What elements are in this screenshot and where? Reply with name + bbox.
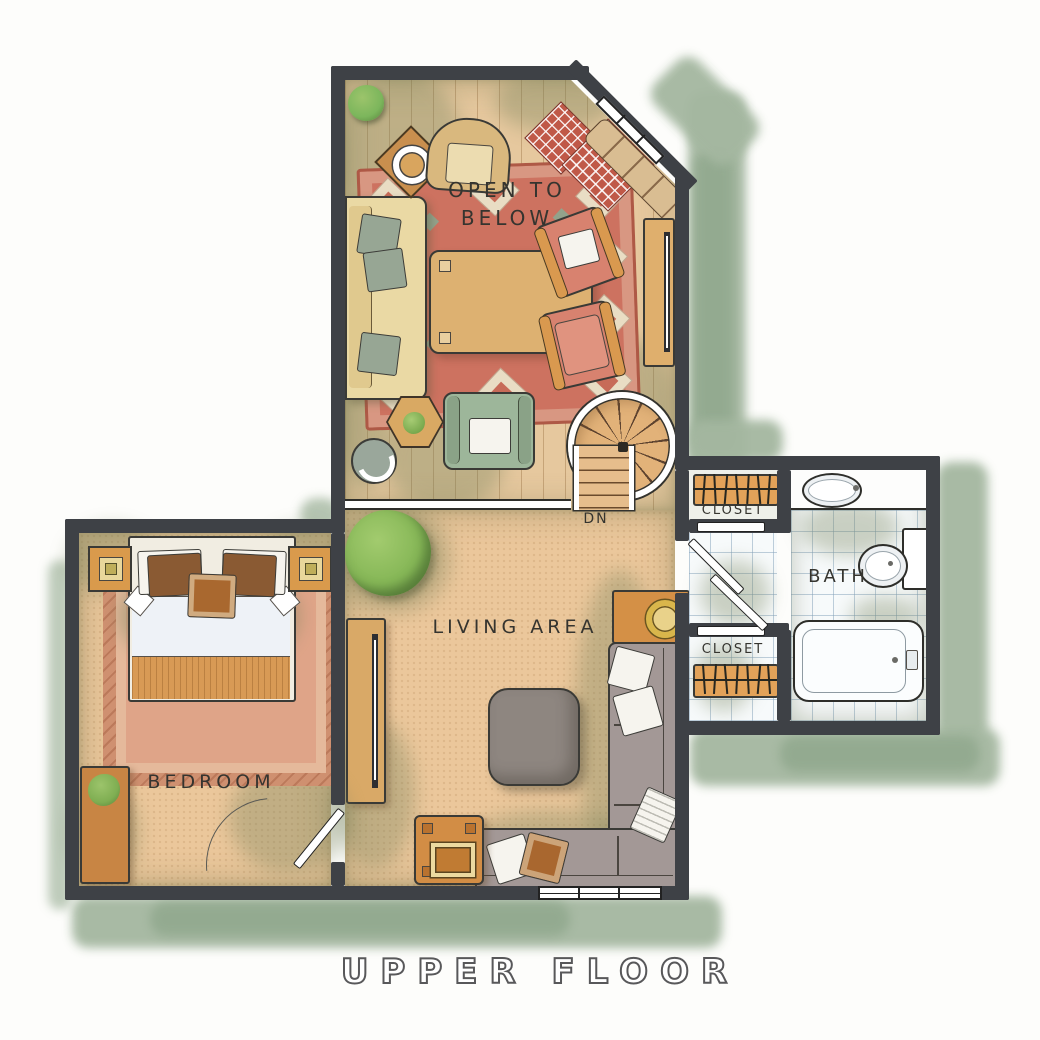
window-rail [540, 893, 660, 895]
wall [331, 66, 589, 80]
loft-railing [345, 499, 571, 510]
tv-console-living [346, 618, 386, 804]
floor-plan-canvas: OPEN TO BELOW [0, 0, 1040, 1040]
window-bottom [538, 886, 662, 900]
armchair-green [443, 392, 535, 470]
watercolor-shadow [780, 736, 980, 772]
wall [65, 519, 79, 900]
wall [777, 630, 791, 721]
window-mullion [636, 134, 646, 144]
lamp-inner [105, 563, 117, 575]
watercolor-shadow [150, 902, 570, 936]
sofa-pillow [362, 247, 407, 292]
bath-counter [791, 470, 926, 510]
chair-arm [447, 396, 460, 464]
foot-blanket [132, 656, 290, 699]
sofa-pillow [357, 332, 402, 377]
stairs-dn-label: DN [576, 511, 616, 527]
room-label-bath: BATH [778, 566, 898, 587]
sink [802, 473, 862, 508]
ottoman [488, 688, 580, 786]
wall [675, 172, 689, 470]
bathtub [793, 620, 924, 702]
closet-rod-shelf [693, 664, 779, 698]
tub-faucet [906, 650, 918, 670]
closet-rod-shelf [693, 474, 779, 506]
table-leg [422, 823, 433, 834]
open-to-below-line2: BELOW [407, 206, 607, 230]
open-to-below-line1: OPEN TO [407, 178, 607, 202]
stair-center-pole [618, 442, 628, 452]
wall [331, 533, 345, 805]
watercolor-shadow [694, 150, 734, 450]
room-label-bedroom: BEDROOM [121, 771, 301, 793]
wall [675, 470, 689, 541]
chair-cushion [469, 418, 511, 454]
lamp-inner [305, 563, 317, 575]
window-mullion [616, 114, 626, 124]
wall [777, 470, 791, 533]
chair-pillow [557, 228, 600, 270]
bed-pillow-accent [187, 573, 237, 619]
closet-slider-door [697, 522, 765, 532]
tv-glint [374, 640, 376, 780]
plan-title: UPPER FLOOR [260, 952, 820, 992]
nightstand [88, 546, 132, 592]
tray [431, 843, 475, 877]
closet-slider-door [697, 626, 765, 636]
wall [331, 66, 345, 533]
wall [675, 721, 940, 735]
spiral-staircase [564, 392, 682, 514]
nightstand [288, 546, 332, 592]
watercolor-shadow [936, 462, 988, 742]
sink-faucet [853, 485, 859, 491]
room-living-area: LIVING AREA [345, 510, 675, 886]
tub-inner [802, 629, 906, 693]
large-plant [345, 510, 431, 596]
potted-plant-icon [88, 774, 120, 806]
stair-straight-flight [574, 446, 634, 510]
bed [128, 536, 296, 702]
wall [926, 456, 940, 735]
sofa-seam [617, 836, 619, 876]
room-label-open-to-below: OPEN TO BELOW [407, 178, 607, 230]
wall [675, 456, 940, 470]
tv-console-below [643, 218, 675, 367]
room-label-living-area: LIVING AREA [403, 616, 627, 638]
armchair-coral [539, 299, 625, 391]
end-table [414, 815, 484, 885]
chair-arm [518, 396, 531, 464]
table-leg [465, 823, 476, 834]
wall [675, 593, 689, 900]
potted-plant-icon [348, 85, 384, 121]
tub-drain [892, 657, 898, 663]
wall [65, 519, 345, 533]
table-leg [439, 260, 451, 272]
tv-glint [666, 236, 668, 348]
window-mullion [618, 888, 620, 898]
closet-bottom-label: CLOSET [689, 642, 777, 657]
window-mullion [578, 888, 580, 898]
closet-top-label: CLOSET [689, 503, 777, 518]
table-leg [439, 332, 451, 344]
round-pouf [351, 438, 397, 484]
